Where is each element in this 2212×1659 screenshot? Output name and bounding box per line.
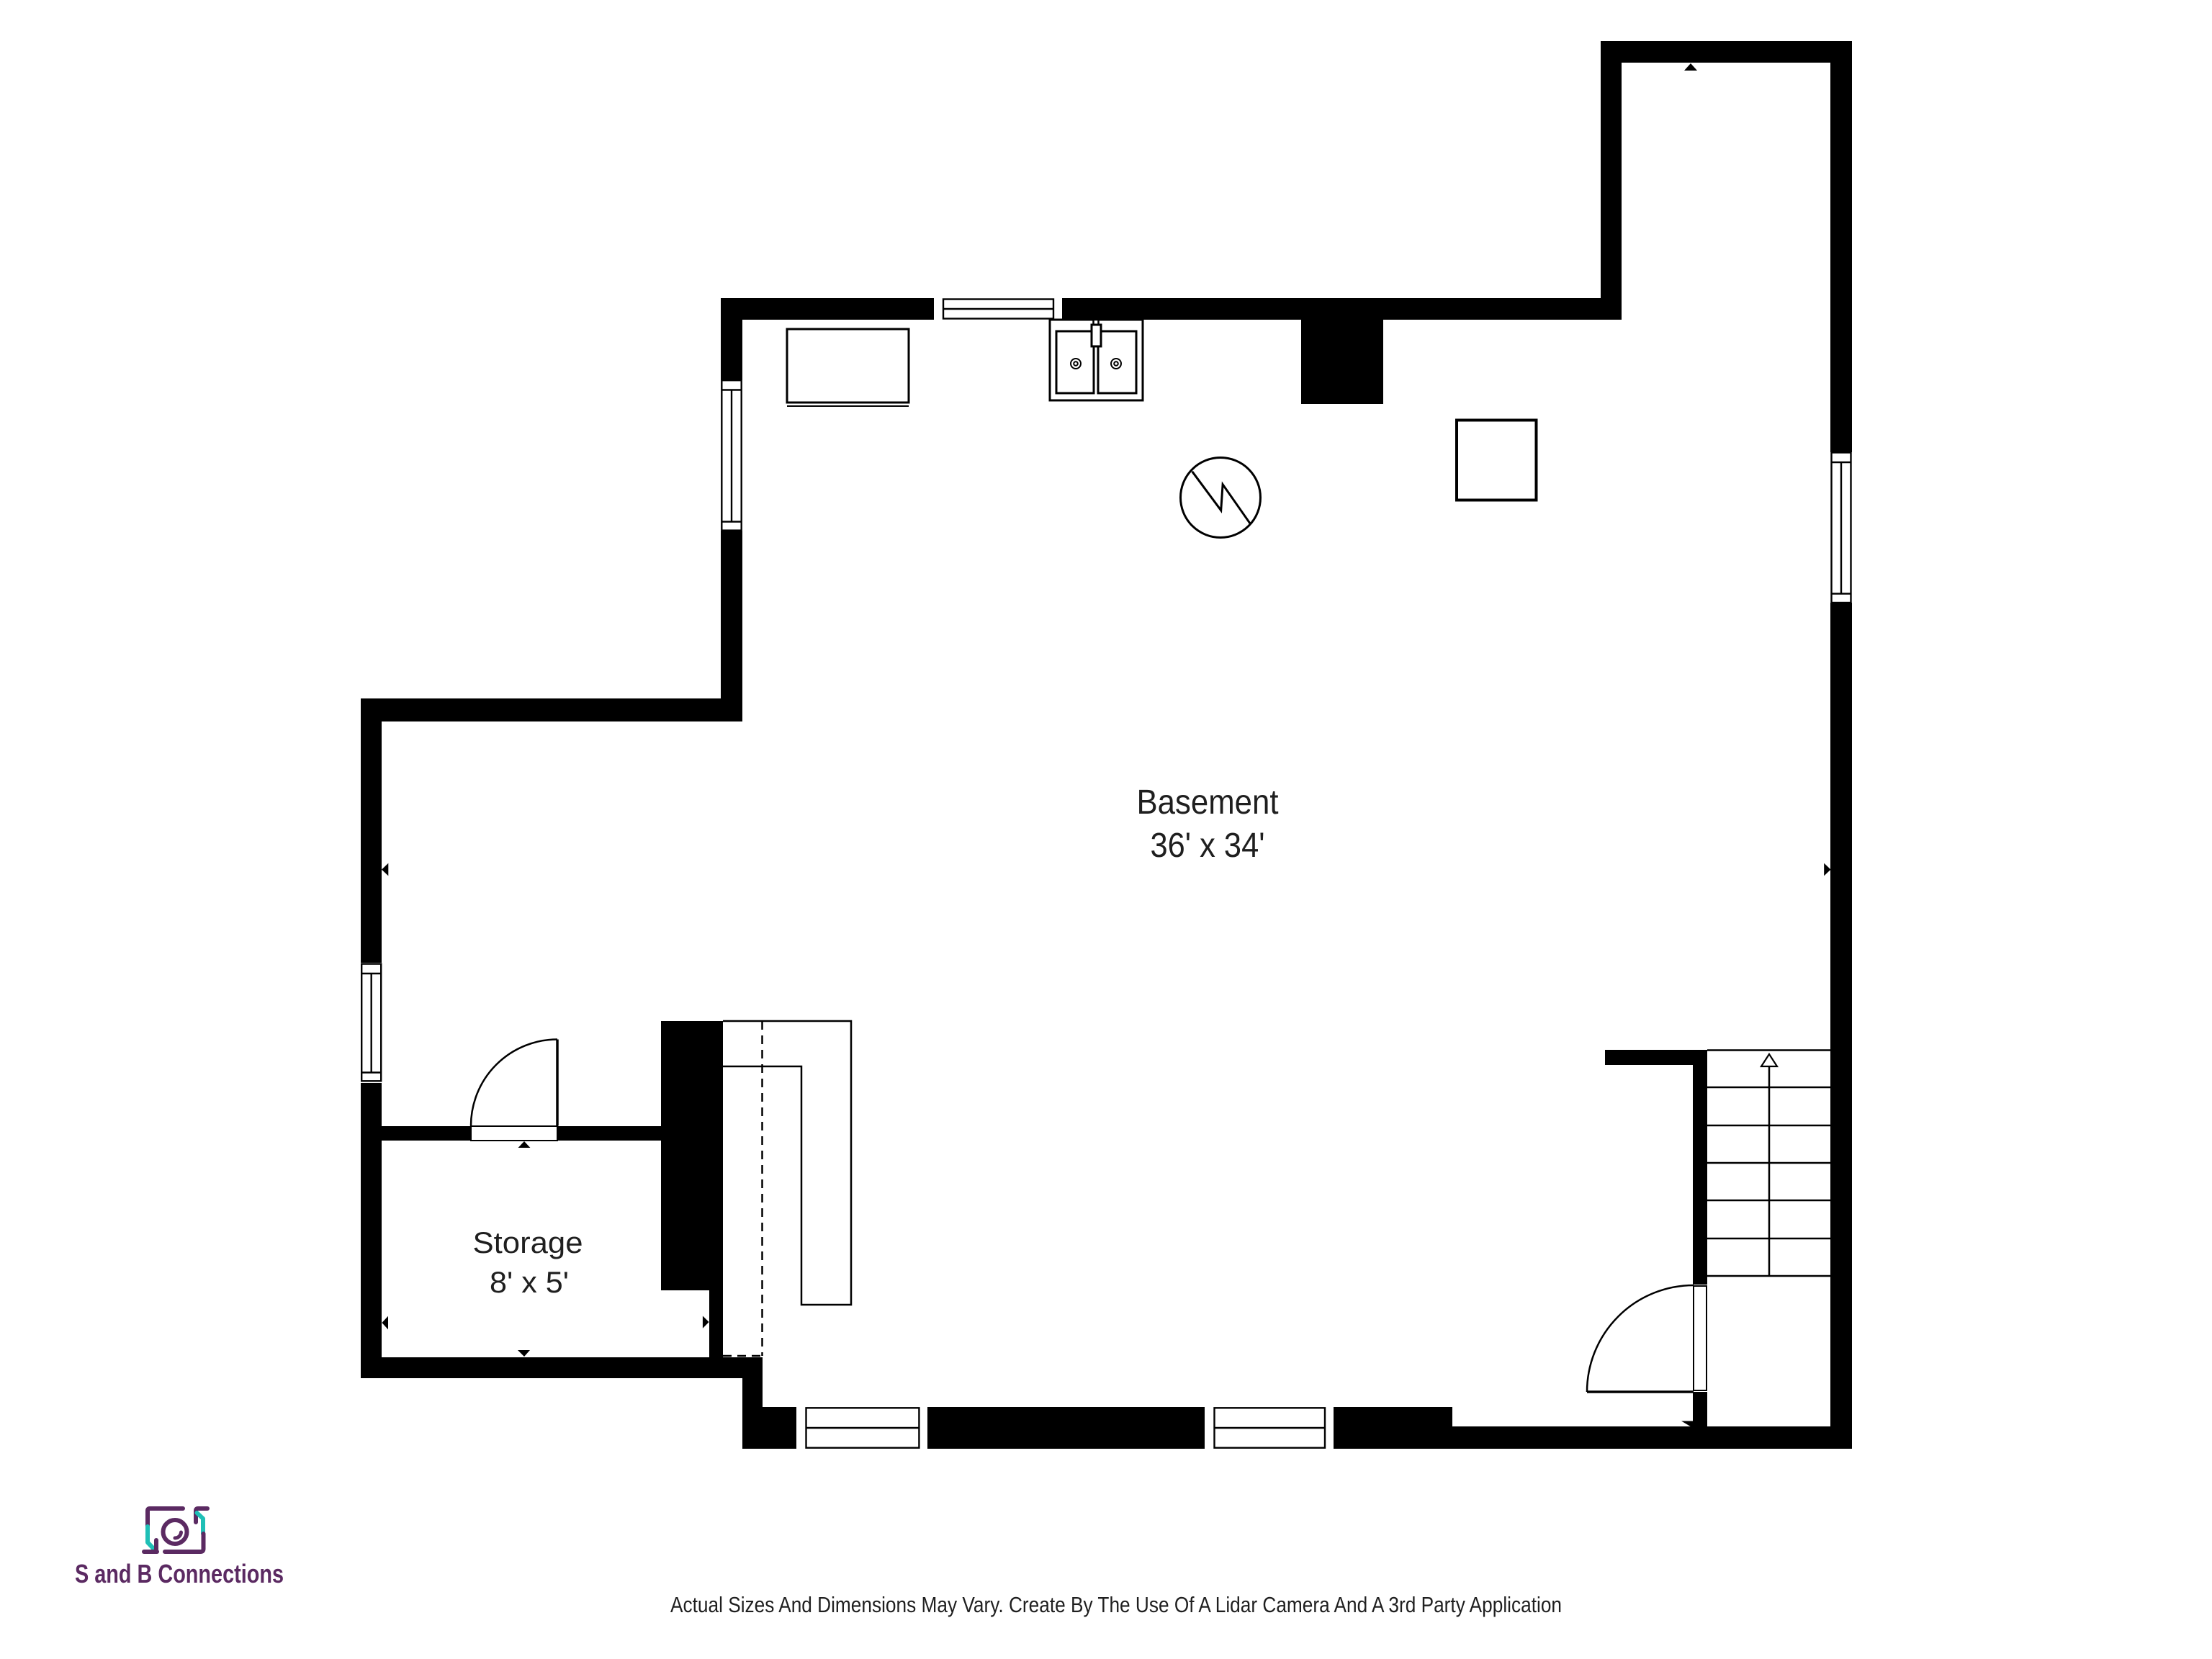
- svg-text:8' x 5': 8' x 5': [490, 1265, 569, 1299]
- svg-text:Basement: Basement: [1137, 783, 1279, 822]
- svg-text:S and B Connections: S and B Connections: [75, 1559, 284, 1588]
- svg-text:Storage: Storage: [473, 1226, 583, 1259]
- svg-text:Actual Sizes And Dimensions Ma: Actual Sizes And Dimensions May Vary. Cr…: [670, 1592, 1562, 1617]
- svg-text:36' x 34': 36' x 34': [1151, 827, 1265, 865]
